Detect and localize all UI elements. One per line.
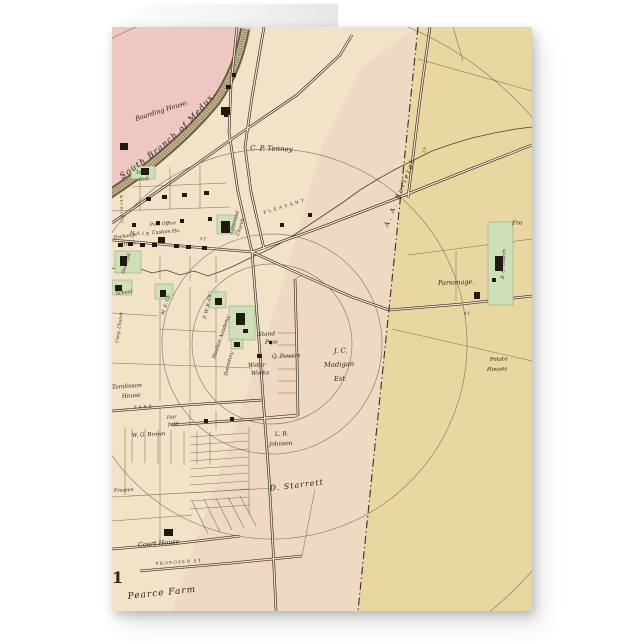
- map-label-water: Water: [248, 362, 267, 369]
- map-label-jc-madigan-1: J. C.: [332, 347, 348, 356]
- map-label-pipe: Pipe: [264, 340, 279, 347]
- map-label-stand: Stand: [258, 331, 276, 338]
- map-label-q-powers: Q. Powers: [272, 353, 301, 360]
- map-label-jc-madigan-2: Madigan: [323, 360, 355, 369]
- map-label-works: Works: [251, 370, 270, 377]
- map-label-street-st-northeast: ST: [421, 147, 427, 155]
- map-label-fro: Fro: [511, 219, 523, 227]
- map-label-potato: Potato: [489, 356, 508, 363]
- card-back-panel: [113, 3, 338, 28]
- vintage-town-map: South Branch of Medux. MAINPLEASANTPARKP…: [112, 27, 532, 611]
- map-label-parsonage: Parsonage.: [437, 278, 475, 287]
- map-label-street-st-square: ST: [200, 236, 207, 241]
- map-label-frazeen: Frazeen: [113, 487, 134, 494]
- map-label-town: Town: [136, 169, 149, 176]
- map-label-street-st-parsonage: ST: [464, 311, 471, 316]
- map-label-numeral-1: 1: [112, 568, 123, 587]
- map-label-hall: Hall.: [138, 176, 151, 183]
- map-label-jc-madigan-3: Est.: [333, 375, 348, 383]
- map-label-lb: L. B.: [274, 431, 289, 438]
- map-label-cp-tenney: C. P. Tenney: [250, 144, 294, 154]
- map-label-houses: Houses: [486, 366, 508, 373]
- greeting-card-mockup: South Branch of Medux. MAINPLEASANTPARKP…: [0, 0, 644, 644]
- card-front-panel: South Branch of Medux. MAINPLEASANTPARKP…: [112, 27, 532, 611]
- map-label-fair: Fair: [166, 414, 178, 421]
- map-label-field: field: [167, 421, 179, 428]
